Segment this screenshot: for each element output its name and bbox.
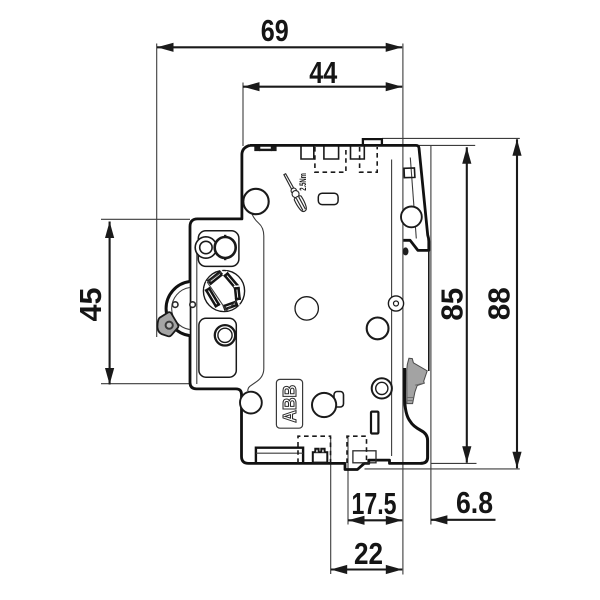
svg-text:69: 69 — [261, 14, 289, 48]
svg-text:45: 45 — [74, 287, 108, 321]
svg-text:44: 44 — [309, 56, 337, 90]
svg-text:17.5: 17.5 — [352, 487, 397, 521]
svg-text:6.8: 6.8 — [456, 486, 493, 520]
svg-text:88: 88 — [483, 287, 517, 320]
svg-text:85: 85 — [436, 288, 470, 321]
svg-text:2.5Nm: 2.5Nm — [298, 173, 309, 191]
svg-text:ABB: ABB — [279, 385, 300, 423]
svg-text:22: 22 — [354, 537, 383, 571]
